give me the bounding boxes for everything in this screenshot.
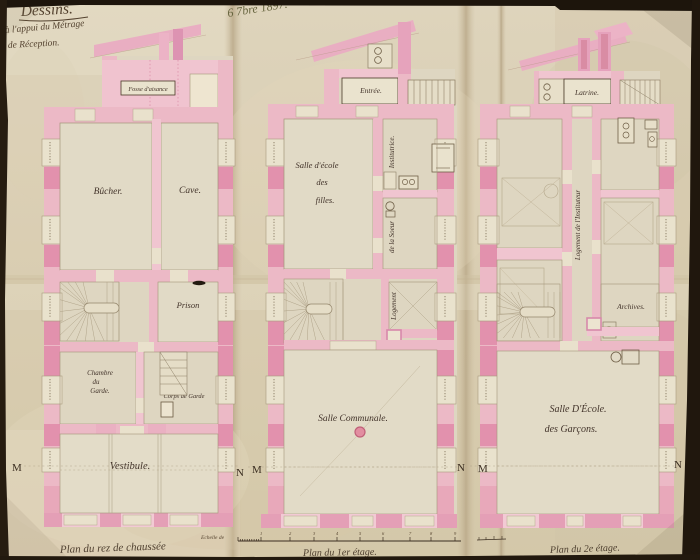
svg-text:N: N <box>236 467 244 479</box>
svg-text:Echelle de: Echelle de <box>200 535 225 541</box>
svg-text:Vestibule.: Vestibule. <box>110 461 151 472</box>
svg-text:Salle d'école: Salle d'école <box>295 160 338 170</box>
svg-text:Salle Communale.: Salle Communale. <box>318 414 388 424</box>
svg-text:Logement de l'Instituteur: Logement de l'Instituteur <box>574 190 582 262</box>
svg-text:filles.: filles. <box>316 195 335 205</box>
svg-text:des: des <box>316 177 328 187</box>
svg-text:Chambre: Chambre <box>87 369 113 377</box>
svg-text:Fosse d'aisance: Fosse d'aisance <box>127 86 168 93</box>
svg-text:Bûcher.: Bûcher. <box>94 187 123 197</box>
svg-text:M: M <box>12 462 22 474</box>
svg-text:Salle D'École.: Salle D'École. <box>549 403 606 415</box>
svg-text:Archives.: Archives. <box>616 302 645 311</box>
svg-text:Prison: Prison <box>176 300 200 310</box>
svg-text:Logement: Logement <box>390 291 398 321</box>
svg-text:N: N <box>674 459 682 471</box>
svg-text:Institutrice.: Institutrice. <box>388 136 396 170</box>
svg-text:Latrine.: Latrine. <box>574 88 599 97</box>
svg-text:du: du <box>93 378 101 386</box>
svg-text:Entrée.: Entrée. <box>359 86 382 95</box>
svg-text:des Garçons.: des Garçons. <box>545 424 598 435</box>
svg-text:1: 1 <box>260 531 262 536</box>
svg-text:de la Soeur: de la Soeur <box>388 221 396 253</box>
svg-text:M: M <box>252 464 262 476</box>
svg-text:Garde.: Garde. <box>90 387 110 395</box>
svg-text:Cave.: Cave. <box>179 186 201 196</box>
svg-text:N: N <box>457 462 465 474</box>
svg-text:M: M <box>478 463 488 475</box>
